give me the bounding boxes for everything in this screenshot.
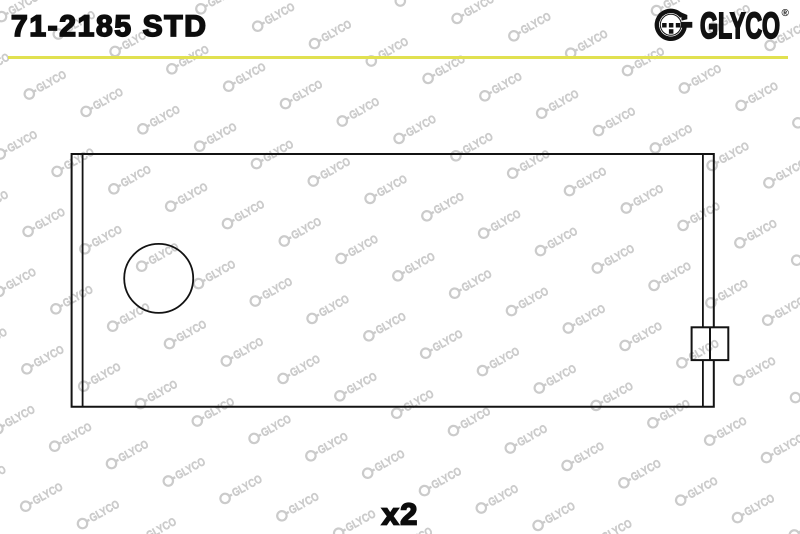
svg-text:GLYCO: GLYCO: [700, 5, 780, 46]
svg-text:71-2185 STD: 71-2185 STD: [11, 10, 208, 43]
svg-text:x2: x2: [382, 497, 419, 531]
svg-text:®: ®: [782, 8, 790, 19]
